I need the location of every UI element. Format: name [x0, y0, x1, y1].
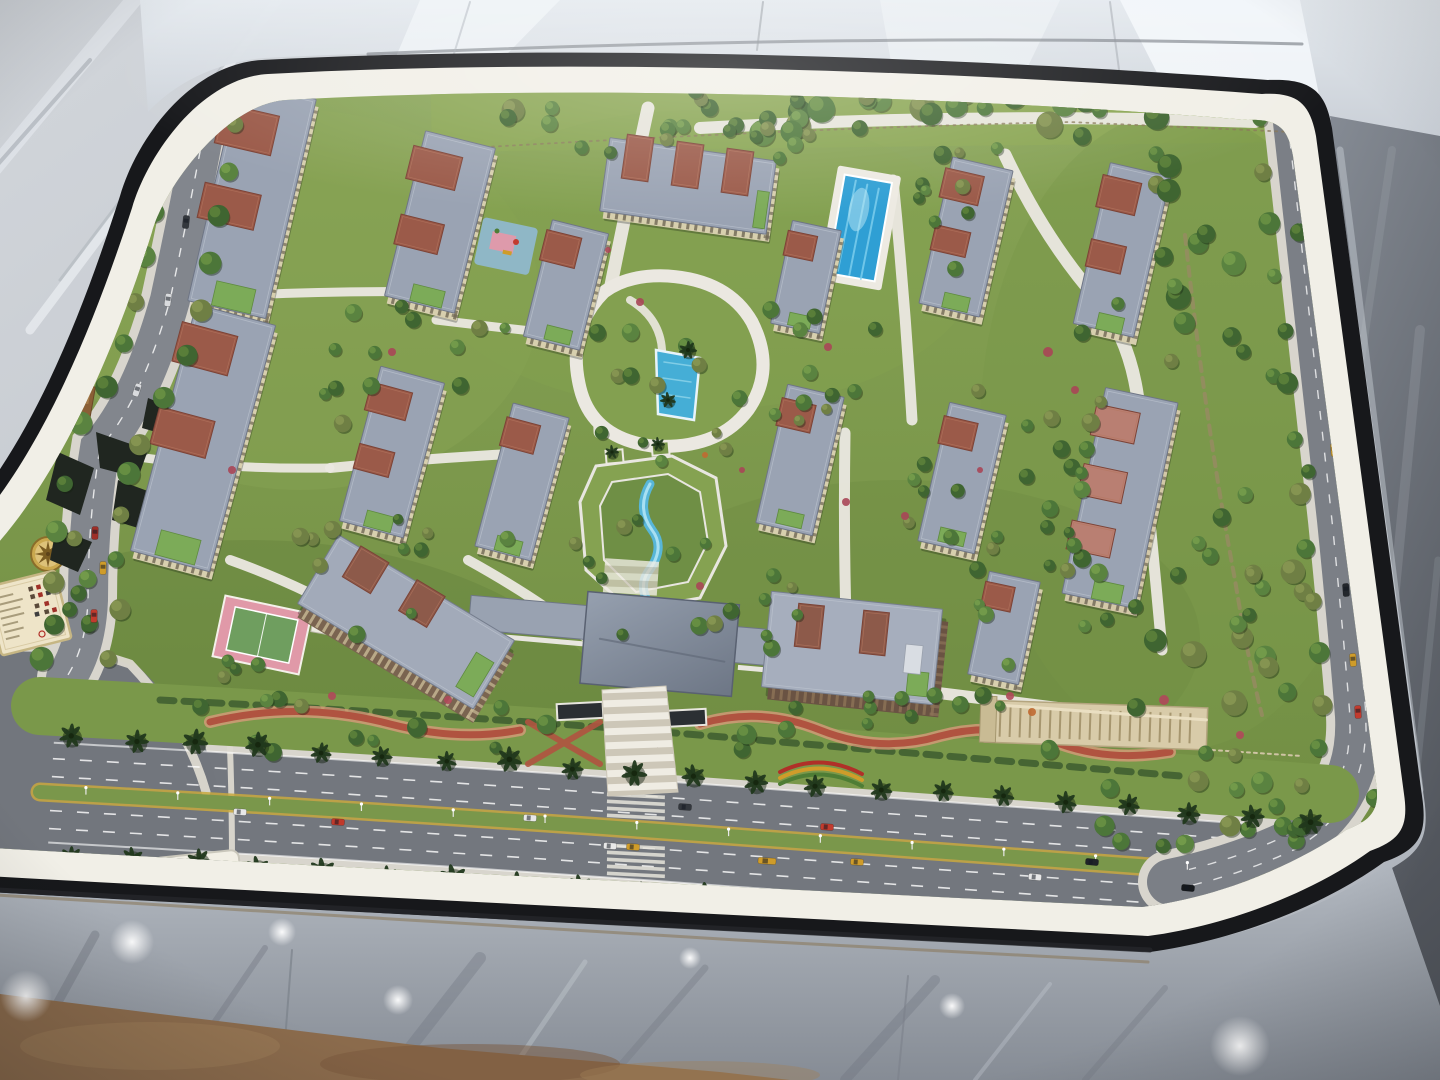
scene-canvas	[0, 0, 1440, 1080]
overlays	[0, 0, 1440, 1080]
vignette	[0, 0, 1440, 1080]
architectural-model-photo	[0, 0, 1440, 1080]
